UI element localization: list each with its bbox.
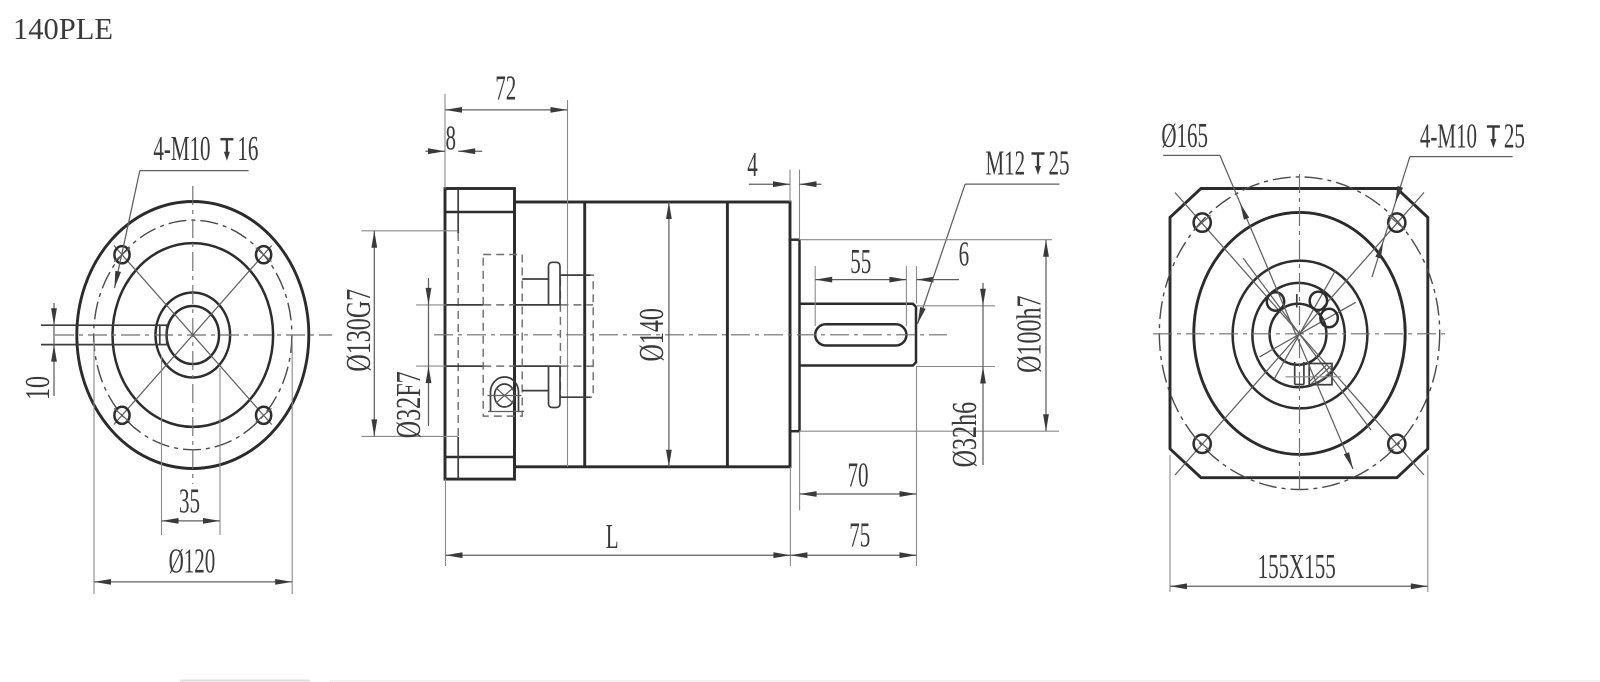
svg-text:Ø165: Ø165 [1161,117,1208,156]
svg-text:75: 75 [849,516,870,555]
svg-text:4: 4 [747,145,758,184]
svg-text:55: 55 [850,243,871,282]
svg-text:M12: M12 [986,144,1026,183]
svg-text:6: 6 [959,235,970,274]
svg-text:4-M10: 4-M10 [1420,117,1477,156]
svg-text:140PLE: 140PLE [13,12,113,46]
svg-text:Ø32h6: Ø32h6 [946,402,984,467]
svg-text:35: 35 [179,482,200,521]
svg-text:25: 25 [1504,117,1525,156]
svg-text:Ø100h7: Ø100h7 [1010,295,1048,372]
svg-text:4-M10: 4-M10 [153,130,210,169]
svg-text:8: 8 [446,119,457,158]
svg-text:Ø32F7: Ø32F7 [390,371,428,438]
svg-text:16: 16 [237,130,258,169]
svg-text:10: 10 [19,376,57,400]
svg-text:25: 25 [1049,144,1070,183]
svg-text:L: L [606,518,619,557]
svg-text:155X155: 155X155 [1258,548,1336,587]
svg-text:Ø140: Ø140 [633,308,671,361]
svg-text:Ø120: Ø120 [169,542,216,581]
svg-text:70: 70 [848,456,869,495]
svg-text:Ø130G7: Ø130G7 [340,289,378,372]
svg-text:72: 72 [495,69,516,108]
